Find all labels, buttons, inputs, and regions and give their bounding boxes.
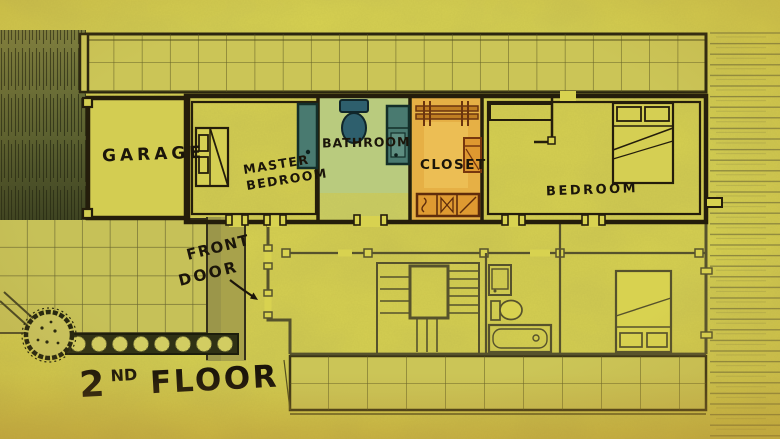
- bottom-edge-shading: [0, 0, 780, 439]
- floor-plan-canvas: GARAGE MASTER BEDROOM BATHROOM CLOSET BE…: [0, 0, 780, 439]
- floor-plan-image: GARAGE MASTER BEDROOM BATHROOM CLOSET BE…: [0, 0, 780, 439]
